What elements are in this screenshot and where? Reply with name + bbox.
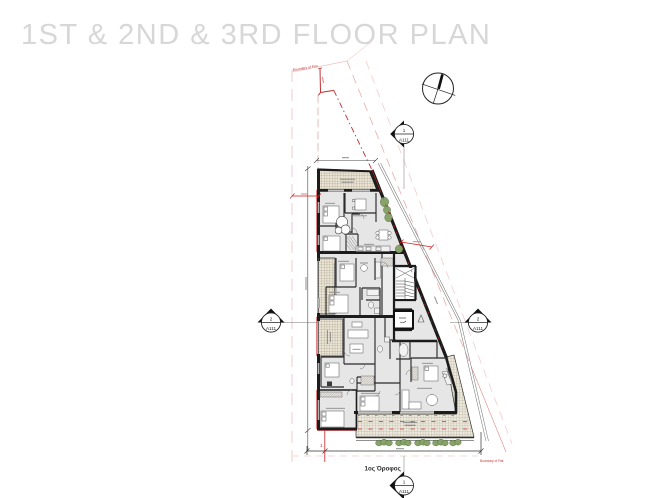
- svg-text:1: 1: [403, 128, 406, 133]
- svg-text:2: 2: [270, 317, 273, 322]
- svg-text:A111: A111: [473, 326, 483, 331]
- svg-text:Boundary of Plot: Boundary of Plot: [293, 64, 318, 72]
- svg-text:A111: A111: [399, 489, 409, 494]
- svg-text:1: 1: [320, 443, 323, 448]
- svg-text:1ST & 2ND & 3RD FLOOR PLAN: 1ST & 2ND & 3RD FLOOR PLAN: [21, 19, 491, 51]
- svg-text:Boundary of Flat: Boundary of Flat: [480, 459, 504, 463]
- svg-text:1: 1: [403, 480, 406, 485]
- svg-text:A111: A111: [266, 326, 276, 331]
- svg-text:A111: A111: [399, 138, 409, 143]
- svg-text:2: 2: [477, 317, 480, 322]
- svg-text:1ος Όροφος: 1ος Όροφος: [365, 466, 401, 473]
